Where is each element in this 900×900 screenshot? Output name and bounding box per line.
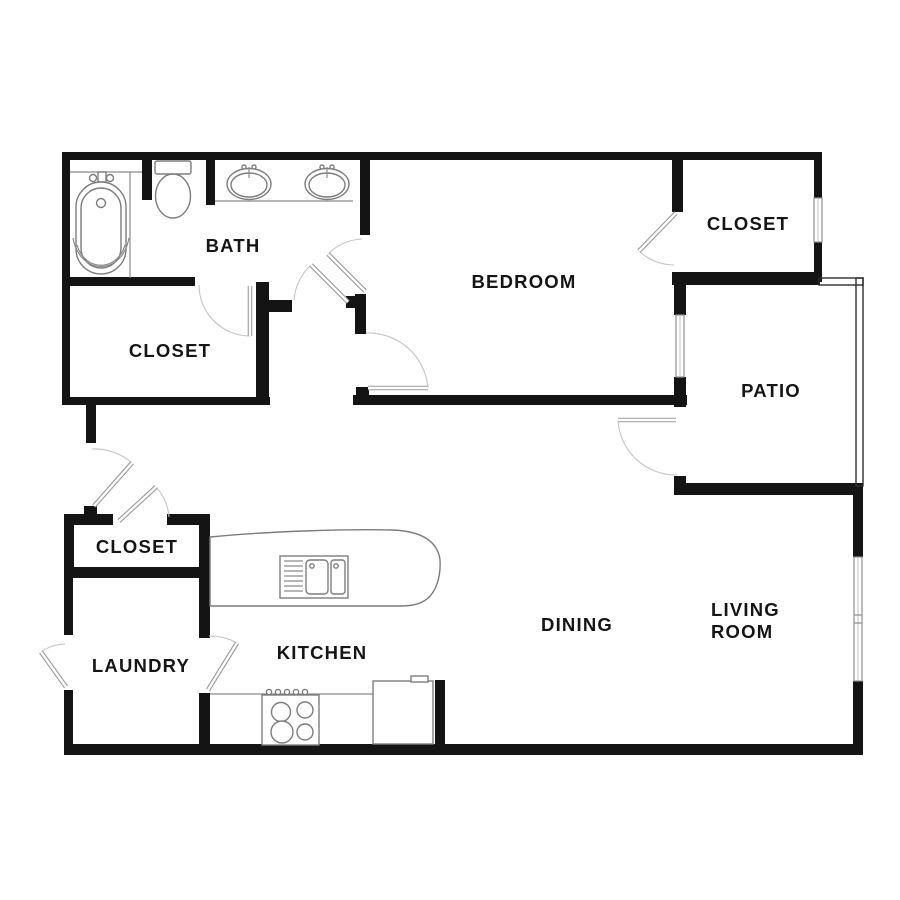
wall-tub-stub	[142, 160, 152, 200]
wall-entry-stub	[86, 405, 96, 443]
double-vanity-sinks	[215, 165, 353, 201]
window-bedroom-patio	[676, 315, 684, 377]
wall-bedroom-bottom	[353, 395, 687, 405]
floor-plan: BATH CLOSET BEDROOM CLOSET PATIO CLOSET …	[0, 0, 900, 900]
toilet	[155, 161, 191, 218]
label-bath: BATH	[206, 235, 261, 256]
floor-plan-canvas: BATH CLOSET BEDROOM CLOSET PATIO CLOSET …	[0, 0, 900, 900]
bathtub	[70, 172, 142, 278]
door-laundry-left	[41, 644, 66, 687]
label-kitchen: KITCHEN	[277, 642, 368, 663]
patio-railing-right	[856, 278, 863, 486]
door-entry	[92, 449, 132, 506]
door-bedroom	[366, 333, 428, 388]
wall-hall-arm	[269, 300, 292, 312]
wall-bottom	[64, 744, 863, 755]
label-living-room: LIVING ROOM	[711, 599, 780, 642]
wall-closet-bedroom-bottom	[672, 272, 820, 285]
wall-kitchen-dining-stub	[435, 680, 445, 744]
label-patio: PATIO	[741, 380, 801, 401]
label-living-room-line1: LIVING	[711, 599, 780, 620]
door-closet-bedroom	[639, 213, 676, 265]
patio-railing	[819, 278, 863, 486]
label-closet-entry: CLOSET	[96, 536, 178, 557]
wall-closet-entry-bottom	[64, 567, 210, 578]
label-living-room-line2: ROOM	[711, 621, 773, 642]
label-laundry: LAUNDRY	[92, 655, 190, 676]
wall-bedroom-closet-partition	[672, 160, 683, 212]
door-closet-entry	[119, 487, 169, 521]
wall-right-stub	[814, 242, 822, 282]
wall-laundry-right-upper	[199, 514, 210, 638]
door-closet-master	[199, 285, 250, 336]
door-hall	[294, 265, 348, 302]
wall-patio-left-a	[674, 285, 686, 315]
door-bath	[328, 239, 365, 291]
wall-closet-master-bottom	[62, 397, 270, 405]
label-closet-master: CLOSET	[129, 340, 211, 361]
island-double-sink	[280, 556, 348, 598]
door-patio	[618, 420, 677, 475]
wall-right-top	[814, 152, 822, 198]
wall-laundry-right-lower	[199, 693, 210, 744]
refrigerator	[373, 676, 433, 744]
wall-patio-bottom	[674, 483, 863, 495]
wall-hall-t	[355, 294, 366, 334]
label-bedroom: BEDROOM	[471, 271, 576, 292]
wall-closet-master-right	[256, 282, 269, 405]
wall-toilet-stub	[206, 160, 215, 205]
label-closet-bedroom: CLOSET	[707, 213, 789, 234]
wall-bath-closet-divider	[62, 277, 195, 286]
wall-bedroom-bottom-stub	[356, 387, 369, 395]
door-laundry-right	[208, 636, 237, 690]
stove	[262, 689, 319, 745]
window-living-room	[854, 557, 862, 681]
wall-living-right-upper	[853, 483, 863, 557]
wall-top	[62, 152, 822, 160]
label-dining: DINING	[541, 614, 613, 635]
kitchen-island	[210, 530, 440, 606]
wall-bedroom-left-upper	[360, 152, 370, 235]
window-closet-bedroom	[814, 198, 822, 242]
wall-laundry-left-upper	[64, 578, 73, 635]
wall-patio-left-b	[674, 377, 686, 407]
wall-living-right-lower	[853, 681, 863, 755]
